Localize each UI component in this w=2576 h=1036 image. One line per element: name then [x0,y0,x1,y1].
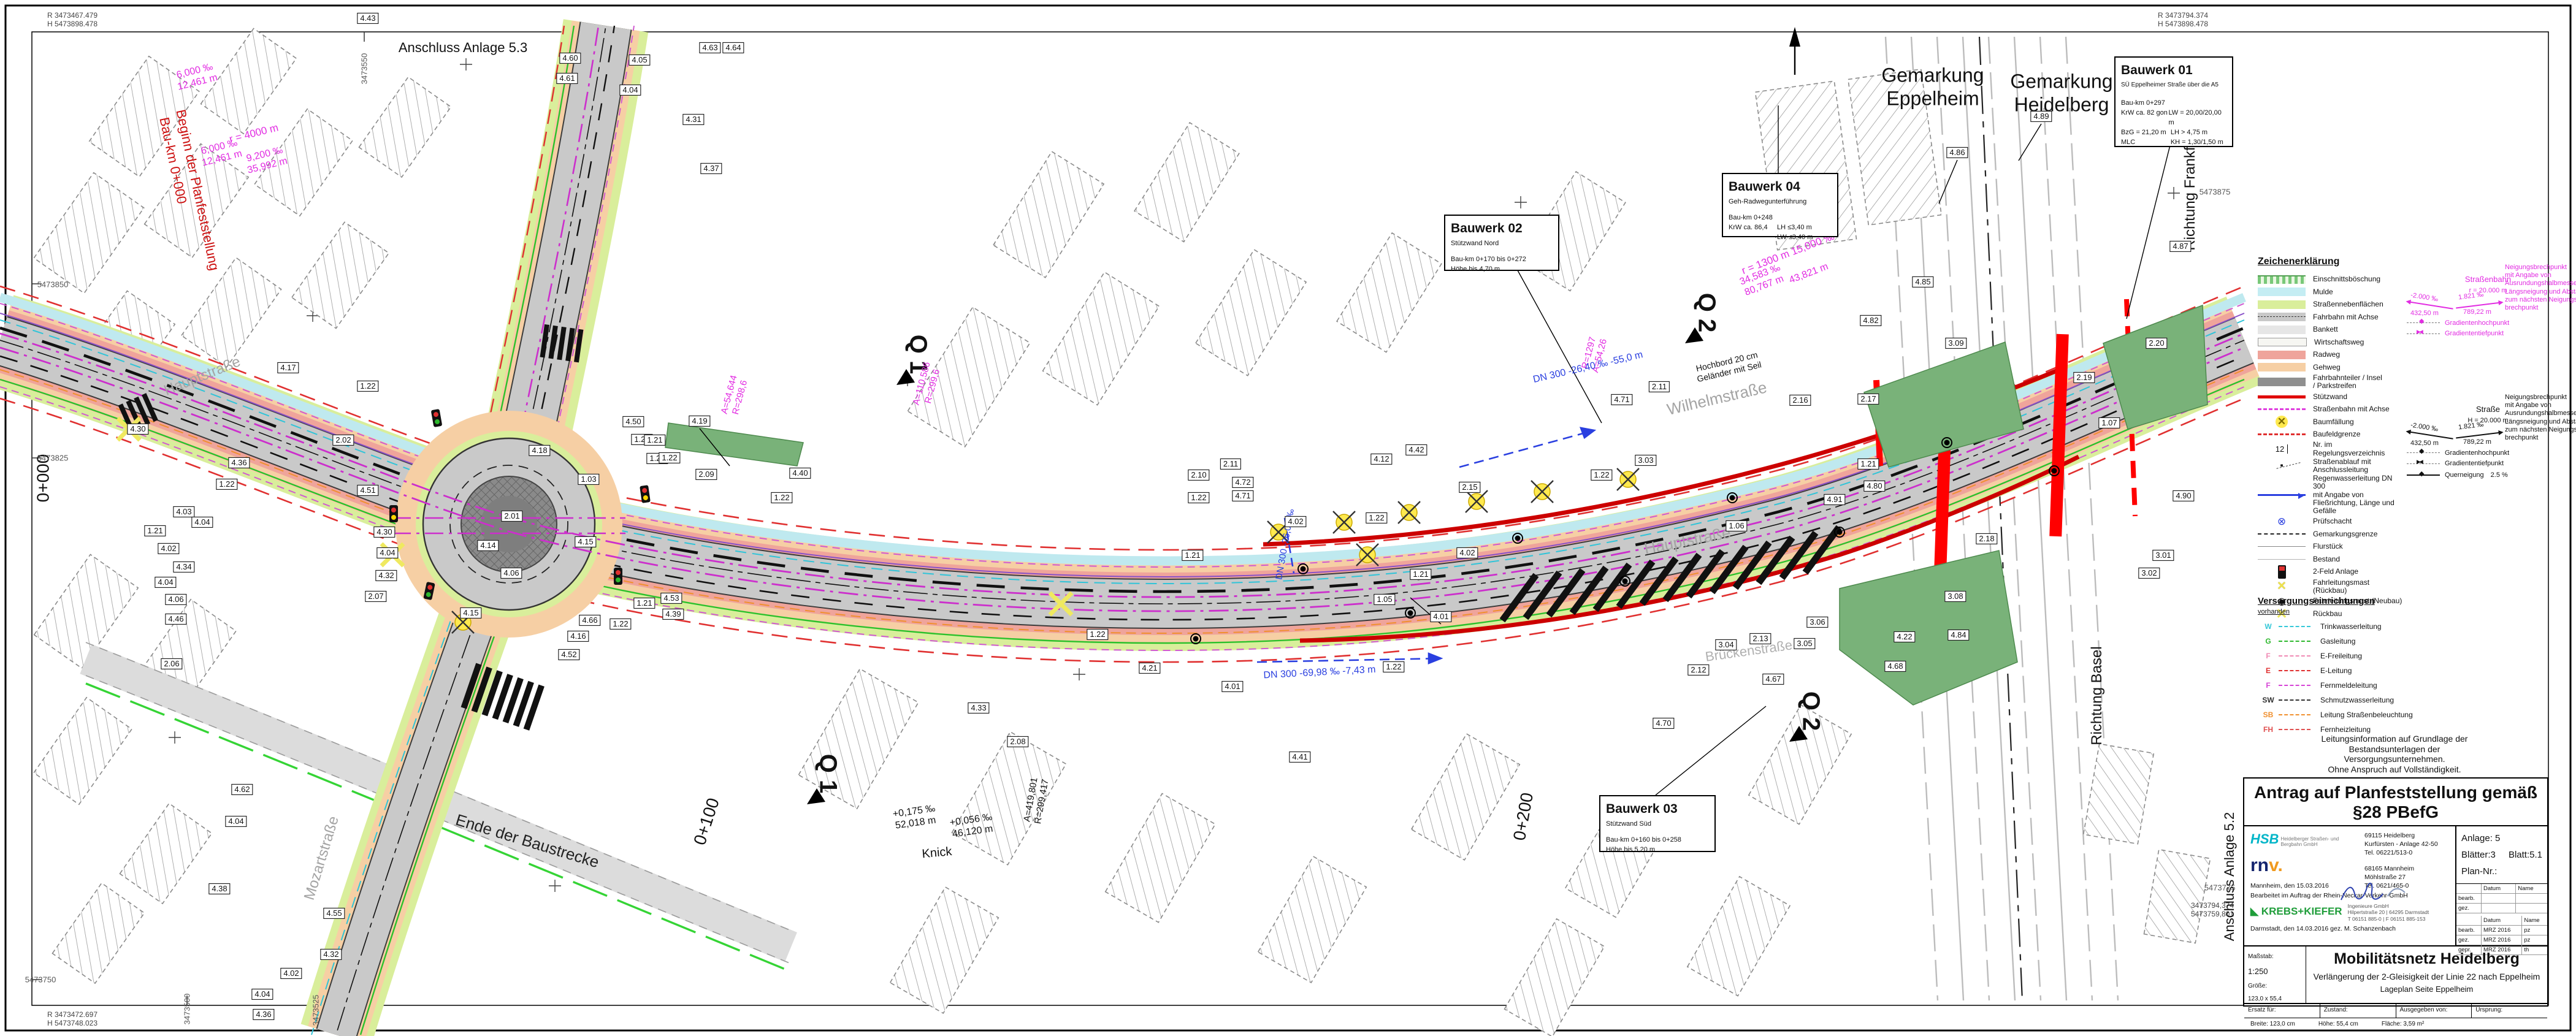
callout-4.86: 4.86 [1946,147,1968,158]
coord-tick: 3473550 [359,53,369,85]
callout-1.22: 1.22 [1366,512,1387,524]
legend-item-label: Nr. im Regelungsverzeichnis [2313,441,2405,457]
callout-4.70: 4.70 [1653,718,1674,729]
krebs-kiefer-logo: KREBS+KIEFER [2250,905,2342,917]
revision-header: Datum [2482,884,2516,894]
richtung-frankfurt: Richtung Frankfurt [2182,129,2199,250]
hsb-address: 69115 Heidelberg Kurfürsten - Anlage 42-… [2364,831,2438,858]
callout-4.15: 4.15 [460,608,481,619]
callout-4.04: 4.04 [619,85,641,96]
groesse-value: 123,0 x 55,4 [2248,992,2302,1005]
bauwerk-01-r3b: KH = 1,30/1,50 m [2171,138,2223,148]
callout-1.21: 1.21 [144,525,166,536]
project-title: Mobilitätsnetz Heidelberg [2306,950,2547,968]
callout-1.22: 1.22 [659,452,680,463]
utility-line-icon [2279,670,2310,671]
callout-1.03: 1.03 [578,474,599,485]
gemarkung-eppelheim: Gemarkung Eppelheim [1881,64,1984,110]
callout-4.60: 4.60 [559,53,581,64]
legend-item-label: Regenwasserleitung DN 300 mit Angabe von… [2313,474,2405,515]
callout-4.17: 4.17 [277,362,299,373]
legend-item-label: Bestand [2313,555,2340,563]
utility-code: SW [2258,696,2279,704]
utility-code: FH [2258,725,2279,734]
revision-header: Datum [2482,916,2522,926]
anlage-label: Anlage: [2461,833,2493,844]
dim-breite: Breite: 123,0 cm [2250,1021,2295,1027]
hsb-logo-sub: Heidelberger Straßen- und Bergbahn GmbH [2281,836,2349,848]
legend-item-regenwasser: Regenwasserleitung DN 300 mit Angabe von… [2258,474,2405,515]
utility-row-Leitung Straßenbeleuchtung: SBLeitung Straßenbeleuchtung [2258,707,2521,722]
callout-2.12: 2.12 [1687,665,1709,676]
utility-label: Trinkwasserleitung [2320,622,2382,631]
title-block-project: Maßstab: 1:250 Größe: 123,0 x 55,4 Mobil… [2244,946,2547,1004]
road-crossfall-label: Querneigung [2445,471,2484,479]
bauwerk-03-l1: Bau-km 0+160 bis 0+258 [1606,836,1709,845]
revision-header [2456,916,2482,926]
ursprung-label: Ursprung: [2472,1004,2547,1018]
legend-item-label: Gemarkungsgrenze [2313,530,2377,538]
plan-sheet: 4.434.604.054.614.044.634.644.314.374.17… [0,0,2576,1036]
callout-4.31: 4.31 [682,114,704,125]
bauwerk-04-sub: Geh-Radwegunterführung [1729,197,1832,207]
bauwerk-04-box: Bauwerk 04 Geh-Radwegunterführung Bau-km… [1722,173,1838,237]
callout-4.21: 4.21 [1139,663,1160,674]
legend-gradient-tram: Straßenbahn r = 20.000 m -2.000 ‰ 1.821 … [2407,275,2569,338]
drainage-note: DN 300 -69,98 ‰ -7,43 m [1263,665,1376,682]
tram-grade: 6,000 ‰ 12,461 m [174,61,219,94]
callout-2.16: 2.16 [1789,395,1811,406]
utility-row-Fernheizleitung: FHFernheizleitung [2258,722,2521,737]
legend-item-label: 2-Feld Anlage [2313,568,2358,576]
tram-grade-line-right [2456,302,2501,308]
ausgabe-label: Ausgegeben von: [2396,1004,2472,1018]
massstab-label: Maßstab: [2248,950,2302,963]
revision-cell [2516,894,2547,904]
utility-code: F [2258,652,2279,660]
legend-item-radweg: Radweg [2258,349,2405,361]
bauwerk-01-l1: Bau-km 0+297 [2121,99,2226,109]
section-q2-bottom: Q 2 [1796,691,1825,731]
callout-1.22: 1.22 [357,381,378,392]
callout-4.05: 4.05 [629,55,650,66]
road-length-right: 789,22 m [2463,438,2491,446]
bauwerk-04-title: Bauwerk 04 [1729,178,1832,196]
coord-tick: 3473500 [182,994,191,1025]
blatt-value: 5.1 [2529,850,2542,860]
callout-4.91: 4.91 [1824,494,1845,505]
utility-line-icon [2279,626,2310,627]
wirtschaftsweg-swatch-icon [2258,338,2307,346]
road-lowpoint-label: Gradiententiefpunkt [2445,460,2504,467]
callout-4.52: 4.52 [558,649,579,660]
pruefschacht-swatch-icon [2258,517,2306,526]
callout-4.04: 4.04 [376,547,398,558]
callout-4.32: 4.32 [375,570,397,581]
bauwerk-04-l1: Bau-km 0+248 [1729,213,1832,223]
tram-curve: A=54,644 R=298,6 [719,374,751,418]
coord-tick: 5473825 [37,453,69,462]
callout-1.22: 1.22 [1087,629,1108,640]
callout-4.32: 4.32 [320,949,342,960]
blaetter-label: Blätter: [2461,850,2491,860]
callout-1.21: 1.21 [1182,550,1203,561]
callout-2.07: 2.07 [365,591,386,602]
callout-1.22: 1.22 [216,479,237,490]
callout-3.04: 3.04 [1715,639,1737,650]
legend-item-mast-rueckbau: Fahrleitungsmast (Rückbau) [2258,579,2405,595]
utility-code: E [2258,666,2279,675]
radweg-swatch-icon [2258,351,2306,359]
callout-4.16: 4.16 [567,631,589,642]
ampel-swatch-icon [2258,568,2306,576]
legend-item-label: Fahrleitungsmast (Rückbau) [2313,579,2405,595]
callout-2.10: 2.10 [1188,470,1209,481]
gemarkung-swatch-icon [2258,533,2306,535]
legend-item-nr: 12Nr. im Regelungsverzeichnis [2258,441,2405,457]
street-mozartstrasse: Mozartstraße [301,814,343,902]
callout-4.90: 4.90 [2173,490,2194,501]
callout-4.89: 4.89 [2030,111,2052,122]
utilities-legend: Versorgungseinrichtungen vorhanden WTrin… [2258,596,2521,737]
bauwerk-02-l1: Bau-km 0+170 bis 0+272 [1451,255,1553,265]
regenwasser-swatch-icon [2258,494,2306,496]
callout-4.71: 4.71 [1611,394,1632,405]
utility-row-E-Freileitung: FE-Freileitung [2258,649,2521,663]
callout-2.08: 2.08 [1007,736,1028,747]
callout-4.02: 4.02 [1285,516,1306,527]
baufeld-swatch-icon [2258,433,2306,435]
callout-4.63: 4.63 [699,42,720,53]
bauwerk-01-r2a: BzG = 21,20 m [2121,128,2171,138]
utility-code: G [2258,637,2279,646]
title-block-heading: Antrag auf Planfeststellung gemäß §28 PB… [2244,779,2547,826]
dim-hoehe: Höhe: 55,4 cm [2318,1021,2358,1027]
callout-2.17: 2.17 [1857,394,1879,405]
legend-item-label: Straßenbahn mit Achse [2313,405,2390,413]
callout-4.67: 4.67 [1762,674,1784,685]
road-highpoint-label: Gradientenhochpunkt [2445,449,2509,457]
callout-1.21: 1.21 [1410,569,1431,580]
revision-header [2456,884,2482,894]
ablauf-swatch-icon [2258,462,2306,470]
utility-code: F [2258,681,2279,690]
callout-4.02: 4.02 [158,543,179,554]
legend-item-mulde: Mulde [2258,286,2405,299]
bauwerk-04-r1b: LH ≤3,40 m [1777,223,1812,233]
flurstueck-swatch-icon [2258,546,2306,547]
gemarkung-heidelberg: Gemarkung Heidelberg [2010,70,2112,116]
callout-2.11: 2.11 [1220,459,1241,470]
callout-3.08: 3.08 [1944,591,1966,602]
revision-cell: pz [2522,935,2547,945]
callout-1.21: 1.21 [644,435,665,446]
utility-code: SB [2258,710,2279,719]
bestand-swatch-icon [2258,559,2306,560]
title-block-mid: HSB Heidelberger Straßen- und Bergbahn G… [2244,826,2547,946]
callout-4.62: 4.62 [231,784,253,795]
revision-cell: bearb. [2456,894,2482,904]
callout-1.22: 1.22 [1188,492,1209,503]
strassenbahn-swatch-icon [2258,408,2306,410]
leitungsinfo-note: Leitungsinformation auf Grundlage der Be… [2304,734,2485,774]
richtung-basel: Richtung Basel [2089,646,2106,745]
stuetzwand-swatch-icon [2258,395,2306,398]
callout-4.04: 4.04 [225,816,247,827]
callout-4.04: 4.04 [155,577,176,588]
bankett-swatch-icon [2258,326,2306,334]
ersatz-label: Ersatz für: [2244,1004,2320,1018]
coord-tick: 3473525 [311,995,320,1026]
callout-4.15: 4.15 [575,536,596,547]
title-block-dims: Breite: 123,0 cm Höhe: 55,4 cm Fläche: 3… [2244,1018,2547,1030]
callout-4.53: 4.53 [660,593,682,604]
massstab-value: 1:250 [2248,963,2302,980]
bauwerk-02-l2: Höhe bis 4,70 m [1451,265,1553,275]
legend-item-pruefschacht: Prüfschacht [2258,516,2405,528]
project-subtitle-2: Lageplan Seite Eppelheim [2306,985,2547,994]
bauwerk-01-title: Bauwerk 01 [2121,61,2226,80]
legend-item-bankett: Bankett [2258,324,2405,336]
legend-item-stuetzwand: Stützwand [2258,390,2405,403]
road-crossfall-value: 2.5 % [2491,471,2508,479]
callout-2.09: 2.09 [695,469,717,480]
nr-swatch-icon: 12 [2258,445,2306,454]
bauwerk-01-r1a: KrW ca. 82 gon [2121,109,2169,128]
callout-1.22: 1.22 [610,619,631,630]
legend-item-label: Baufeldgrenze [2313,430,2360,438]
revision-cell: pz [2522,926,2547,935]
section-q1-bottom: Q 1 [813,754,842,793]
legend-item-gehweg: Gehweg [2258,362,2405,374]
legend-item-label: Baumfällung [2313,418,2354,426]
revision-header: Name [2516,884,2547,894]
callout-4.19: 4.19 [689,416,710,427]
callout-4.42: 4.42 [1405,444,1427,455]
coord-tick: 5473850 [37,280,69,289]
legend-item-label: Einschnittsböschung [2313,275,2380,283]
callout-4.87: 4.87 [2169,241,2191,252]
legend-gradient-road: Straße H = 20.000 m -2.000 ‰ 1.821 ‰ 432… [2407,405,2569,479]
revision-cell: bearb. [2456,926,2482,935]
legend-item-baumfaellung: Baumfällung [2258,416,2405,428]
callout-4.84: 4.84 [1947,630,1969,641]
tram-length-left: 432,50 m [2410,310,2439,318]
legend-item-bestand: Bestand [2258,554,2405,566]
revision-cell: gez. [2456,904,2482,913]
street-wilhelmstrasse: Wilhelmstraße [1665,378,1769,419]
callout-3.02: 3.02 [2138,568,2160,579]
utility-line-icon [2279,655,2310,657]
bauwerk-03-l2: Höhe bis 5,20 m [1606,845,1709,855]
bauwerk-04-r2b: LW ≤3,40 m [1777,233,1813,243]
revision-cell: MRZ 2016 [2482,926,2522,935]
revision-cell [2516,904,2547,913]
utility-row-Trinkwasserleitung: WTrinkwasserleitung [2258,619,2521,634]
chainage-0+200: 0+200 [1509,791,1537,842]
street-hauptstrasse: Hauptstraße [1643,523,1732,558]
chainage-0+100: 0+100 [689,796,724,848]
dim-flaeche: Fläche: 3,59 m² [2382,1021,2424,1027]
ende-der-baustrecke: Ende der Baustrecke [453,810,601,872]
mulde-swatch-icon [2258,288,2306,296]
legend-item-label: Flurstück [2313,543,2343,550]
baumfaellung-swatch-icon [2258,417,2306,426]
revision-cell [2482,894,2516,904]
tram-highpoint-label: Gradientenhochpunkt [2445,319,2509,327]
legend-item-insel: Fahrbahnteiler / Insel / Parkstreifen [2258,374,2405,390]
utility-line-icon [2279,729,2310,730]
callout-4.61: 4.61 [556,73,578,84]
coord-corner: R 3473472.697 H 5473748.023 [47,1010,97,1027]
callout-3.01: 3.01 [2152,550,2174,561]
kk-date: Darmstadt, den 14.03.2016 gez. M. Schanz… [2250,925,2449,932]
utility-label: Gasleitung [2320,637,2355,646]
bauwerk-01-r2b: LH > 4,75 m [2171,128,2207,138]
grade-note: A=419,801 R=299,417 [1022,777,1051,825]
nebenflaechen-swatch-icon [2258,300,2306,309]
tram-length-right: 789,22 m [2463,308,2491,316]
callout-4.40: 4.40 [789,468,811,479]
revision-table-1: DatumNamebearb.gez. [2456,884,2547,913]
legend-item-label: Mulde [2313,288,2333,296]
street-hauptstrasse-west: Hauptstraße [161,353,243,400]
legend-item-label: Fahrbahnteiler / Insel / Parkstreifen [2313,374,2382,390]
legend-item-label: Wirtschaftsweg [2314,338,2364,346]
callout-4.37: 4.37 [700,163,722,174]
callout-4.06: 4.06 [165,594,186,605]
utility-label: Fernheizleitung [2320,725,2371,734]
coord-tick: 5473875 [2200,187,2231,196]
utility-label: E-Leitung [2320,666,2352,675]
road-length-left: 432,50 m [2410,440,2439,448]
callout-3.03: 3.03 [1635,455,1656,466]
bauwerk-03-sub: Stützwand Süd [1606,820,1709,829]
utility-label: Leitung Straßenbeleuchtung [2320,710,2413,719]
legend-item-flurstueck: Flurstück [2258,541,2405,553]
callout-4.01: 4.01 [1430,611,1451,622]
utility-line-icon [2279,714,2310,715]
hsb-logo: HSB [2250,831,2279,847]
revision-cell: gez. [2456,935,2482,945]
tram-grade: 6,000 ‰ 12,461 m [198,137,243,170]
utility-code: W [2258,622,2279,631]
utilities-title: Versorgungseinrichtungen [2258,596,2521,606]
callout-4.18: 4.18 [529,445,550,456]
blaetter-value: 3 [2491,850,2496,860]
callout-4.30: 4.30 [373,527,395,538]
callout-1.07: 1.07 [2098,417,2120,428]
legend-item-ampel: 2-Feld Anlage [2258,566,2405,578]
bauwerke-01-r3a: MLC [2121,138,2171,148]
rnv-logo: rnv. [2250,855,2283,875]
legend-item-gemarkung: Gemarkungsgrenze [2258,528,2405,541]
utility-row-Fernmeldeleitung: FFernmeldeleitung [2258,678,2521,693]
signature-icon [2336,879,2410,906]
callout-2.02: 2.02 [332,435,354,446]
coord-corner: R 3473794.374 H 5473898.478 [2158,11,2208,28]
bauwerk-02-title: Bauwerk 02 [1451,219,1553,238]
plan-overlay: 4.434.604.054.614.044.634.644.314.374.17… [0,0,2576,1036]
callout-4.50: 4.50 [622,416,644,427]
legend-item-label: Radweg [2313,351,2340,359]
utility-row-E-Leitung: EE-Leitung [2258,663,2521,678]
tram-lowpoint-label: Gradiententiefpunkt [2445,330,2504,337]
callout-3.09: 3.09 [1945,338,1966,349]
callout-1.22: 1.22 [1591,470,1612,481]
callout-4.02: 4.02 [1456,547,1478,558]
callout-2.01: 2.01 [501,511,522,522]
bauwerk-01-box: Bauwerk 01 SÜ Eppelheimer Straße über di… [2114,56,2233,147]
callout-4.46: 4.46 [165,614,186,625]
callout-4.12: 4.12 [1370,454,1392,465]
gehweg-swatch-icon [2258,363,2306,371]
plannr-label: Plan-Nr.: [2461,863,2542,880]
utility-line-icon [2279,685,2310,686]
callout-2.20: 2.20 [2146,338,2167,349]
bauwerk-01-sub: SÜ Eppelheimer Straße über die A5 [2121,81,2226,90]
utility-line-icon [2279,641,2310,642]
coord-tick: 5473750 [25,975,56,984]
callout-1.05: 1.05 [1374,594,1395,605]
callout-4.68: 4.68 [1884,661,1906,672]
utilities-sub: vorhanden [2258,608,2521,615]
legend-item-fahrbahn: Fahrbahn mit Achse [2258,311,2405,324]
legend-item-label: Stützwand [2313,393,2347,401]
callout-4.06: 4.06 [500,568,522,579]
groesse-label: Größe: [2248,980,2302,992]
bauwerk-01-r1b: LW = 20,00/20,00 m [2169,109,2227,128]
callout-4.43: 4.43 [357,13,378,24]
revision-header: Name [2522,916,2547,926]
bauwerk-02-box: Bauwerk 02 Stützwand Nord Bau-km 0+170 b… [1444,215,1559,271]
mast-rueckbau-swatch-icon [2258,582,2306,591]
callout-1.21: 1.21 [633,598,655,609]
legend-title: Zeichenerklärung [2258,256,2405,267]
callout-4.30: 4.30 [127,424,148,435]
callout-4.64: 4.64 [722,42,744,53]
callout-4.41: 4.41 [1289,752,1310,763]
callout-4.04: 4.04 [191,517,213,528]
knick-label: Knick [922,845,953,862]
callout-4.55: 4.55 [323,908,345,919]
legend-item-label: Fahrbahn mit Achse [2313,313,2379,321]
callout-4.02: 4.02 [280,968,302,979]
section-q2-top: Q 2 [1692,293,1721,332]
einschnitt-swatch-icon [2258,275,2306,284]
bauwerk-03-box: Bauwerk 03 Stützwand Süd Bau-km 0+160 bi… [1599,795,1716,852]
callout-2.13: 2.13 [1749,633,1771,644]
road-diagram-desc: Neigungsbrechpunkt mit Angabe von Ausrun… [2505,394,2576,442]
anschluss-anlage-52: Anschluss Anlage 5.2 [2222,812,2238,941]
callout-4.39: 4.39 [662,609,684,620]
callout-1.21: 1.21 [1857,459,1879,470]
title-block: Antrag auf Planfeststellung gemäß §28 PB… [2243,777,2548,1007]
callout-4.66: 4.66 [579,615,600,626]
callout-4.85: 4.85 [1912,276,1933,288]
bauwerk-02-sub: Stützwand Nord [1451,239,1553,249]
legend-item-label: Bankett [2313,326,2338,333]
callout-1.22: 1.22 [771,492,792,503]
callout-3.05: 3.05 [1794,638,1815,649]
legend-item-einschnitt: Einschnittsböschung [2258,273,2405,286]
callout-4.14: 4.14 [477,540,499,551]
legend-item-strassenbahn: Straßenbahn mit Achse [2258,403,2405,416]
utility-row-Gasleitung: GGasleitung [2258,634,2521,649]
callout-2.11: 2.11 [1649,381,1670,392]
bauwerk-04-r1a: KrW ca. 86,4 [1729,223,1777,233]
bauwerk-03-title: Bauwerk 03 [1606,800,1709,818]
